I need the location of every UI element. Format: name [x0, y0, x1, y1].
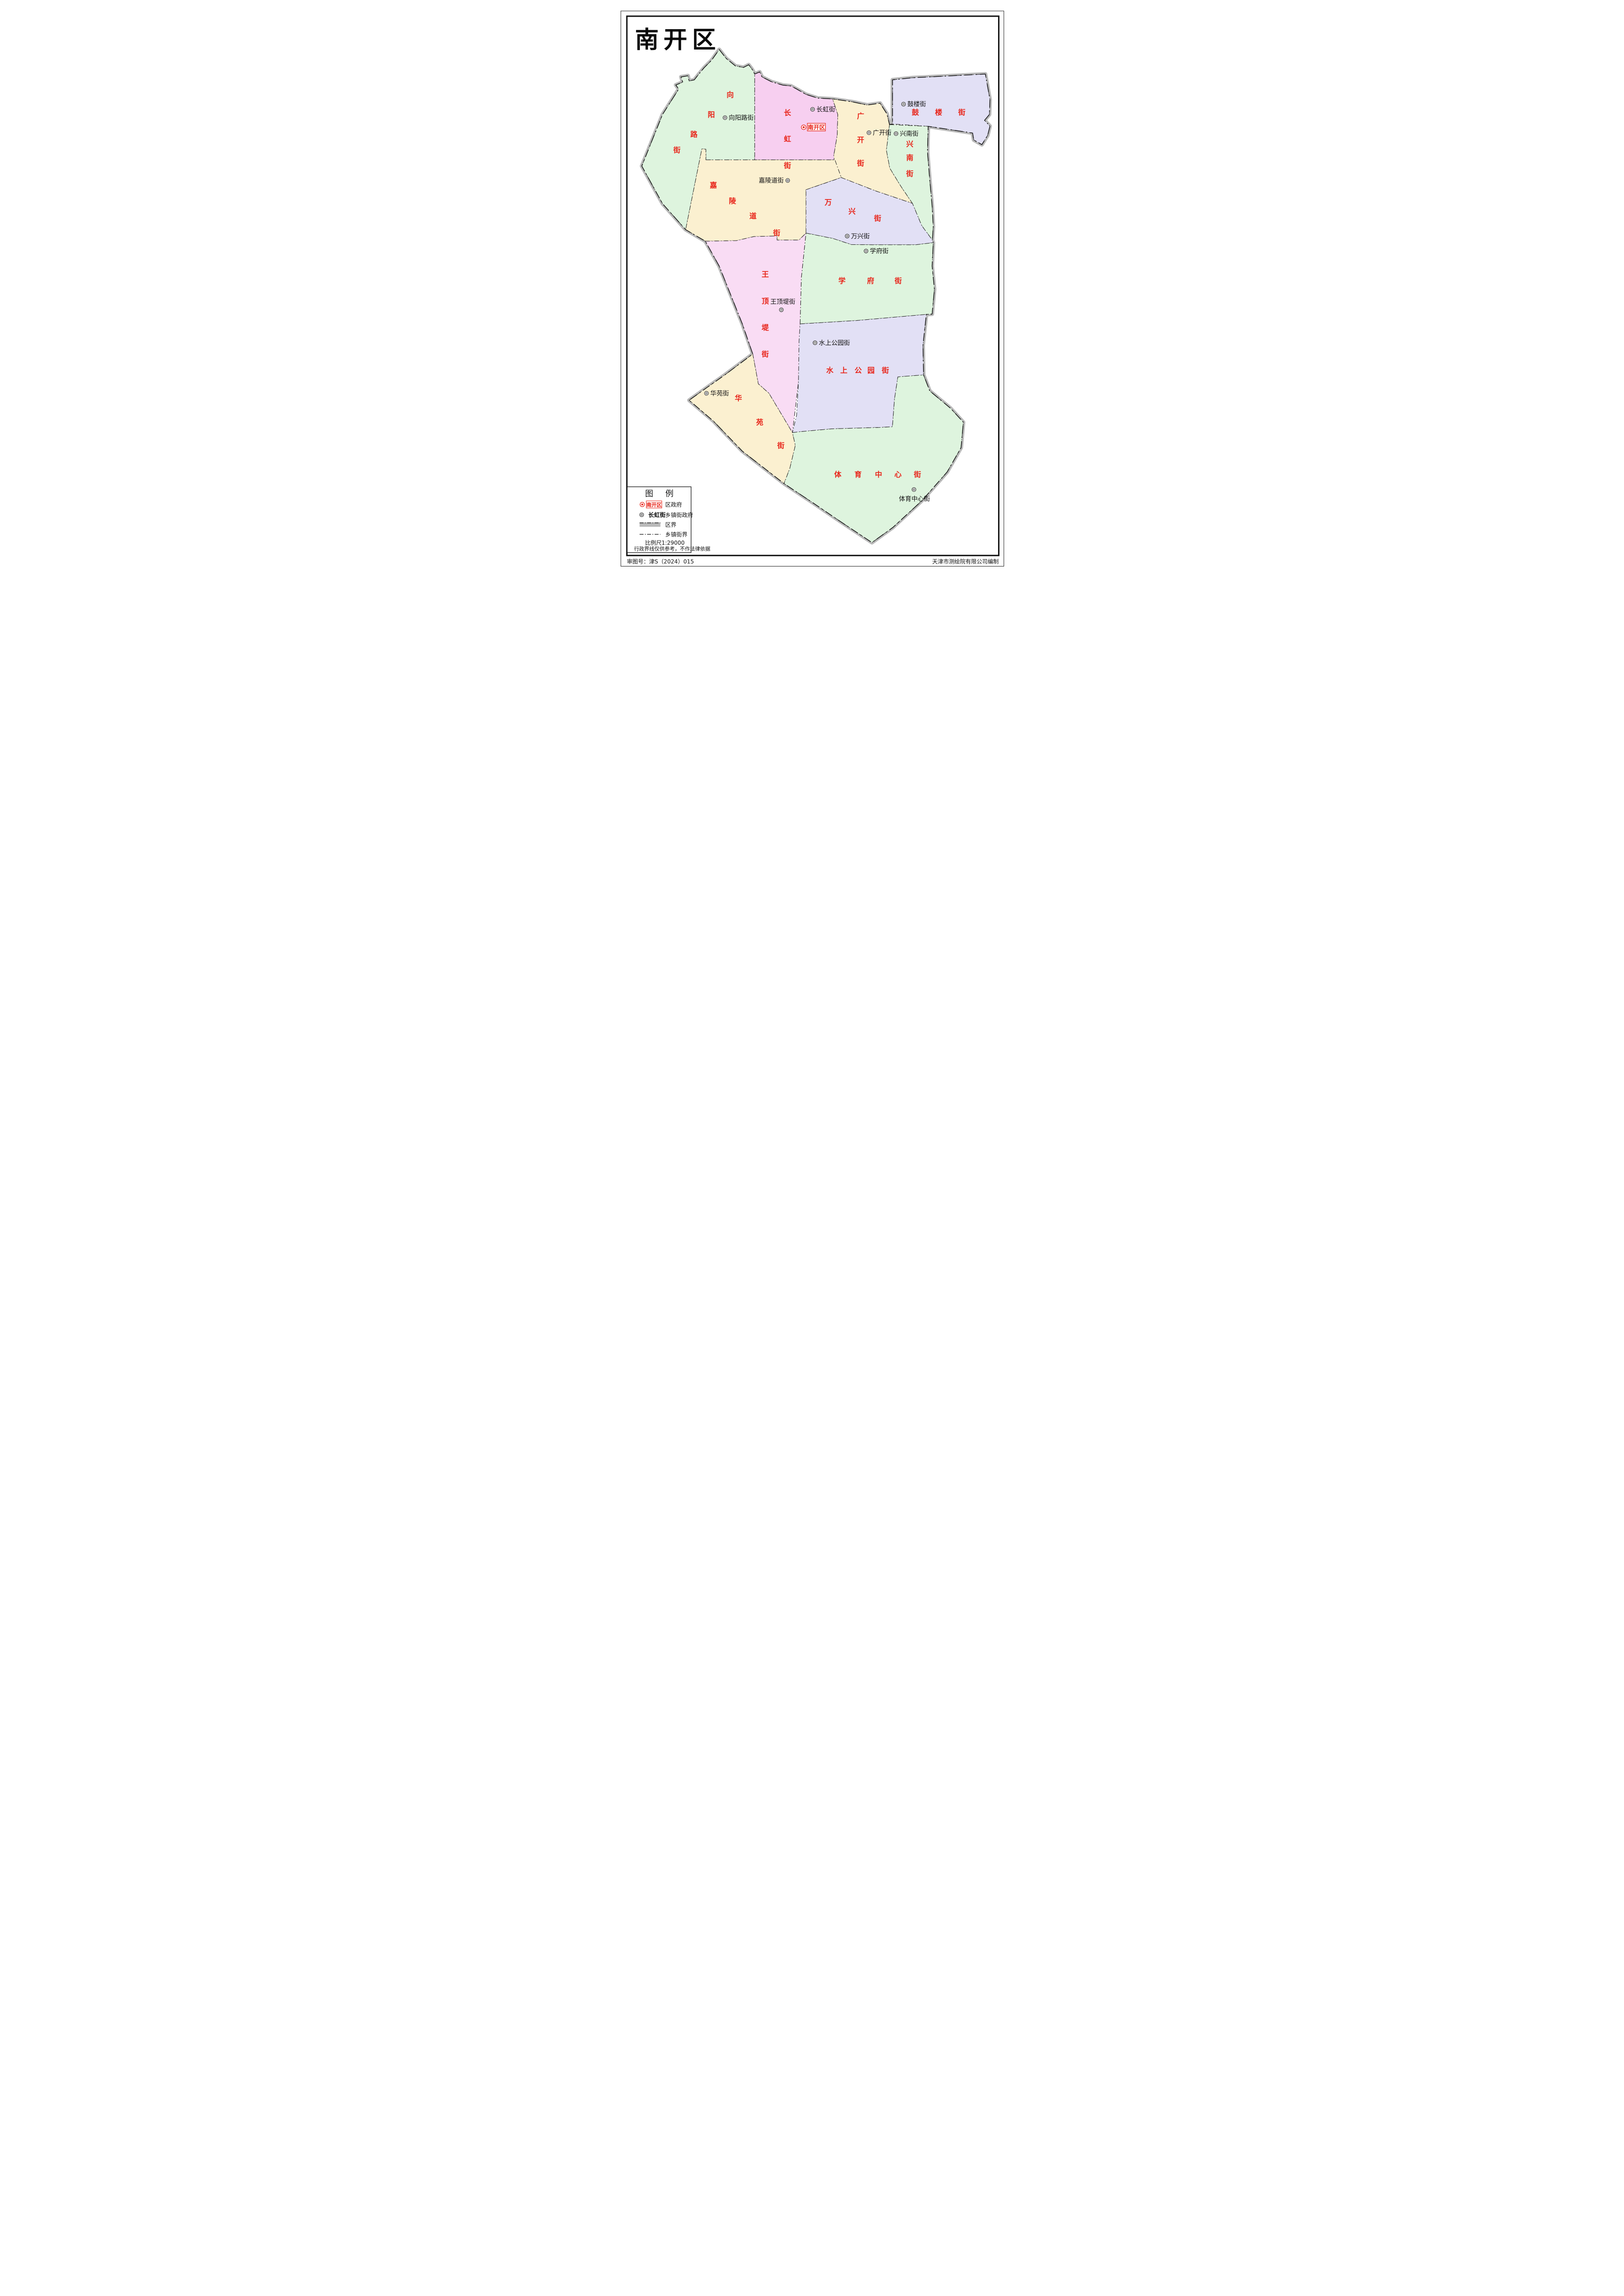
region-label-char: 广	[857, 112, 864, 120]
legend-scale-label: 比例尺	[645, 540, 662, 546]
region-label-char: 兴	[848, 207, 856, 216]
region-label-char: 学	[838, 276, 845, 285]
legend-label-district-boundary: 区界	[665, 522, 676, 528]
legend-sample-district: 南开区	[646, 502, 662, 508]
region-label-char: 鼓	[912, 108, 919, 117]
marker-label: 万兴街	[851, 233, 869, 240]
region-label-char: 街	[783, 161, 791, 170]
legend: 图 例 南开区 区政府 长虹街 乡镇街政府 区界 乡镇街界 比例尺 1:2900…	[627, 487, 710, 553]
region-label-char: 兴	[906, 140, 913, 148]
region-label-char: 长	[784, 108, 791, 117]
district-marker-label: 南开区	[807, 124, 825, 131]
region-label-char: 虹	[784, 134, 791, 143]
region-label-char: 公	[854, 367, 862, 375]
marker-label: 嘉陵道街	[759, 177, 784, 185]
region-label-char: 育	[854, 470, 861, 479]
footer-approval-number: 审图号：津S（2024）015	[627, 558, 694, 565]
marker-label: 水上公园街	[818, 339, 849, 347]
region-label-char: 向	[726, 90, 733, 99]
region-label-char: 街	[894, 276, 902, 285]
region-label-char: 嘉	[709, 181, 717, 190]
region-label-char: 街	[873, 214, 881, 223]
map-title: 南开区	[635, 26, 720, 54]
nankai-district-map: 南开区 向 阳 路 街 长 虹 街 广 开 街 鼓 楼 街 兴 南 街 嘉 陵 …	[609, 0, 1015, 574]
legend-label-township-government: 乡镇街政府	[665, 511, 693, 518]
region-label-char: 万	[824, 199, 831, 207]
region-label-char: 楼	[935, 108, 942, 117]
footer-publisher: 天津市测绘院有限公司编制	[932, 558, 999, 565]
region-label-char: 上	[840, 367, 847, 375]
region-label-char: 街	[777, 441, 785, 450]
region-label-char: 中	[874, 470, 881, 479]
region-label-char: 街	[913, 470, 921, 479]
marker-label: 体育中心街	[899, 495, 930, 503]
region-label-char: 顶	[762, 297, 769, 305]
region-label-char: 街	[856, 159, 864, 168]
legend-label-township-boundary: 乡镇街界	[665, 531, 687, 538]
map-page: 南开区 向 阳 路 街 长 虹 街 广 开 街 鼓 楼 街 兴 南 街 嘉 陵 …	[609, 0, 1015, 574]
region-label-char: 街	[906, 169, 913, 178]
region-label-char: 路	[690, 130, 698, 138]
region-label-char: 王	[762, 270, 768, 279]
region-label-char: 华	[735, 393, 742, 402]
marker-label: 向阳路街	[729, 114, 754, 122]
region-label-char: 南	[906, 153, 913, 162]
region-label-char: 府	[867, 276, 874, 285]
marker-label: 鼓楼街	[907, 101, 925, 108]
marker-label: 广开街	[873, 129, 891, 137]
region-label-char: 体	[834, 470, 841, 479]
region-label-char: 道	[749, 212, 756, 220]
region-label-char: 园	[867, 367, 874, 375]
legend-row-district-government: 南开区 区政府	[640, 501, 681, 508]
marker-label: 学府街	[869, 248, 888, 255]
region-label-char: 街	[761, 349, 769, 358]
region-label-char: 心	[894, 470, 901, 479]
marker-label: 华苑街	[710, 390, 729, 398]
region-label-char: 街	[957, 108, 965, 117]
region-label-char: 水	[826, 366, 833, 375]
legend-sample-township: 长虹街	[648, 511, 666, 518]
region-label-char: 开	[857, 136, 864, 144]
legend-title-char: 例	[665, 489, 674, 498]
legend-label-district-government: 区政府	[665, 501, 682, 508]
marker-label: 王顶堤街	[770, 299, 795, 306]
marker-label: 长虹街	[816, 106, 835, 113]
legend-title-char: 图	[645, 489, 653, 498]
region-label-char: 街	[881, 366, 889, 375]
region-label-char: 陵	[729, 197, 736, 205]
region-label-char: 苑	[756, 418, 763, 427]
region-label-char: 堤	[762, 324, 769, 332]
marker-label: 兴南街	[899, 130, 918, 137]
legend-scale-value: 1:29000	[662, 540, 685, 546]
region-label-char: 阳	[707, 111, 714, 119]
region-label-char: 街	[773, 229, 781, 237]
region-label-char: 街	[673, 145, 681, 154]
region-changhong	[755, 72, 837, 160]
legend-note: 行政界线仅供参考，不作法律依据	[634, 546, 710, 552]
